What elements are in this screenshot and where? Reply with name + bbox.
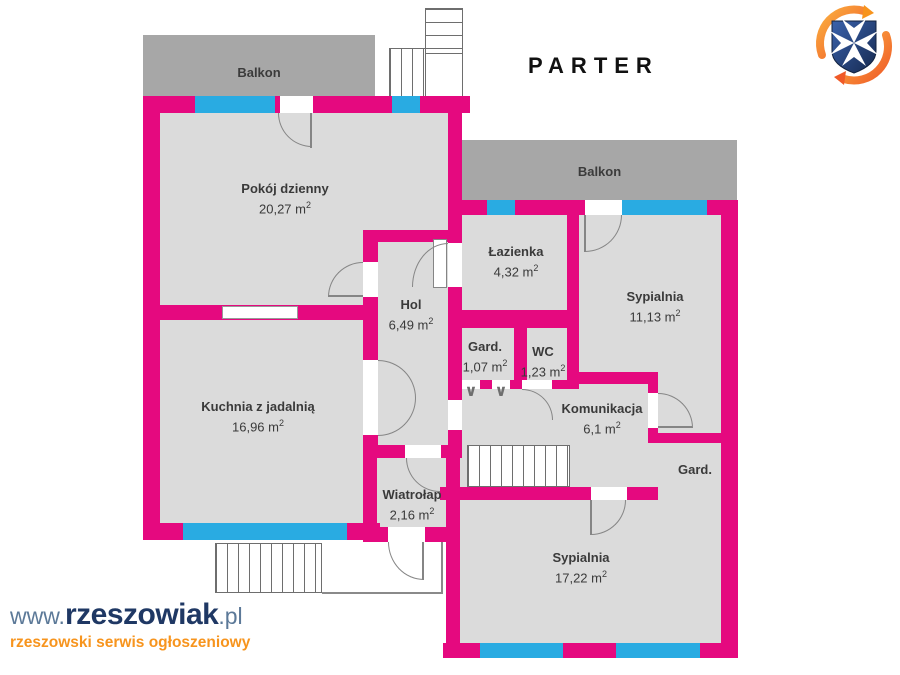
room-label-sypialnia-2: Sypialnia 17,22 m2 (552, 549, 609, 586)
door-opening (405, 445, 441, 458)
room-label-sypialnia-1: Sypialnia 11,13 m2 (626, 288, 683, 325)
window (487, 200, 515, 215)
site-logo-tld: .pl (218, 605, 242, 628)
door-opening (585, 200, 622, 215)
door-leaf (310, 113, 312, 148)
wall (658, 433, 721, 443)
door-opening (591, 487, 627, 500)
door-opening (648, 393, 658, 428)
room-label-gard-1: Gard. 1,07 m2 (463, 338, 508, 375)
balcony-label: Balkon (237, 65, 280, 80)
balcony-label: Balkon (578, 164, 621, 179)
room-label-pokoj-dzienny: Pokój dzienny 20,27 m2 (241, 180, 328, 217)
wall (448, 96, 462, 243)
door-opening (363, 262, 378, 297)
room-label-wiatrolap: Wiatrołap 2,16 m2 (382, 486, 441, 523)
floor-plan: Balkon Balkon (0, 0, 900, 675)
door-leaf (658, 426, 692, 428)
door-leaf (328, 295, 363, 297)
exterior-stairs-side-run (389, 48, 426, 97)
window (616, 643, 700, 658)
door-leaf (584, 215, 586, 252)
room-label-hol: Hol 6,49 m2 (389, 296, 434, 333)
site-logo-wordmark: www.rzeszowiak.pl (10, 600, 250, 630)
door-opening (448, 243, 462, 287)
folding-door-icon: ∨ (461, 385, 481, 399)
window (480, 643, 563, 658)
site-logo-www: www. (10, 605, 65, 628)
exterior-stairs-top-run (425, 8, 463, 54)
room-label-wc: WC 1,23 m2 (521, 343, 566, 380)
door-opening (388, 527, 425, 542)
door-leaf (590, 500, 592, 535)
wall (567, 372, 658, 384)
door-opening (363, 360, 378, 435)
balcony-top-left: Balkon (143, 35, 375, 96)
room-label-gard-2: Gard. (678, 461, 712, 478)
page-title: PARTER (528, 53, 659, 79)
folding-door-icon: ∨ (491, 385, 511, 399)
door-opening (522, 380, 552, 389)
door-arc (388, 542, 424, 580)
room-label-komunikacja: Komunikacja 6,1 m2 (562, 400, 643, 437)
door-opening (448, 400, 462, 430)
site-logo-name: rzeszowiak (65, 600, 218, 630)
window (195, 96, 275, 113)
wall (648, 384, 658, 393)
window (392, 96, 420, 113)
chimney-notch (222, 306, 298, 319)
rzeszowiak-emblem-icon (812, 3, 896, 87)
wall (446, 458, 460, 643)
wall (648, 428, 658, 443)
porch-edge-line (441, 542, 443, 594)
wall (721, 200, 738, 658)
balcony-right: Balkon (462, 140, 737, 202)
window (183, 523, 347, 540)
exterior-stairs-bottom (215, 543, 322, 593)
wall (567, 215, 579, 384)
stairs-landing (425, 53, 463, 97)
site-logo: www.rzeszowiak.pl rzeszowski serwis ogło… (10, 600, 250, 651)
interior-stairs (467, 445, 570, 487)
window (622, 200, 707, 215)
room-label-lazienka: Łazienka 4,32 m2 (489, 243, 544, 280)
door-opening (280, 96, 313, 113)
porch-edge-line (322, 592, 442, 594)
door-leaf (422, 542, 424, 580)
wall (448, 430, 462, 458)
wall (448, 310, 579, 328)
site-logo-tagline: rzeszowski serwis ogłoszeniowy (10, 635, 250, 651)
room-label-kuchnia: Kuchnia z jadalnią 16,96 m2 (201, 398, 314, 435)
